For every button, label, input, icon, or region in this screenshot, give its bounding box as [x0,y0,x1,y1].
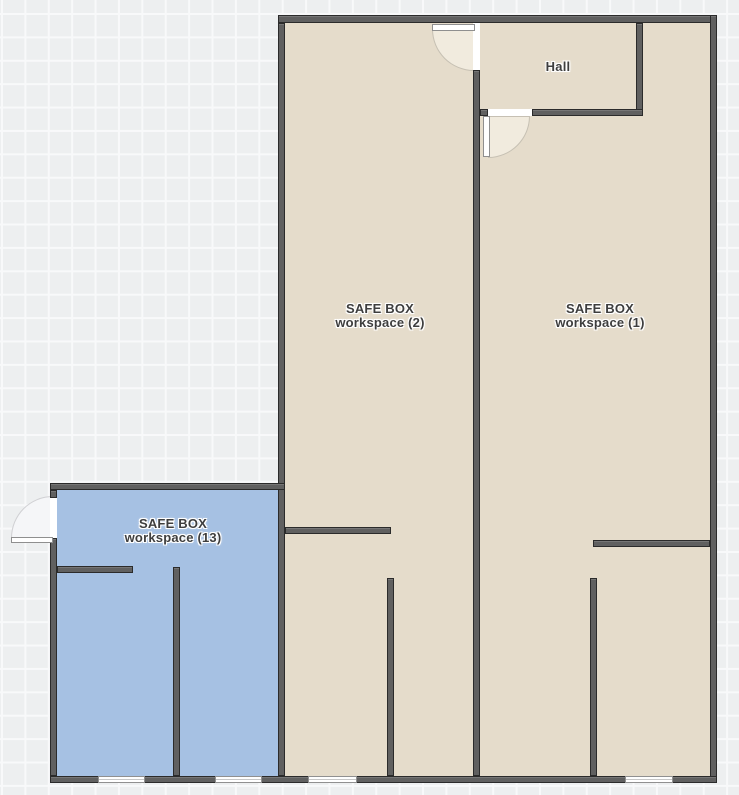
window-ws1[interactable] [625,776,673,783]
wall-main-left[interactable] [278,23,285,776]
wall-hall-right[interactable] [636,23,643,116]
room-workspace-2[interactable] [285,23,473,776]
door-hall-south-opening [488,109,532,116]
door-entry-leaf[interactable] [11,537,53,543]
wall-ws13-partition-horizontal[interactable] [57,566,133,573]
room-hall[interactable] [480,23,636,109]
door-hall-south-leaf[interactable] [483,116,490,157]
door-entry-swing-arc [11,496,53,538]
floorplan-canvas[interactable]: SAFE BOX workspace (2) SAFE BOX workspac… [0,0,739,795]
wall-ws1-partition-horizontal[interactable] [593,540,710,547]
wall-center-vertical[interactable] [473,70,480,776]
door-entry-opening [50,498,57,538]
window-ws13-left[interactable] [98,776,145,783]
wall-outer-top[interactable] [278,15,717,23]
wall-hall-bottom[interactable] [532,109,643,116]
wall-ws2-partition-horizontal[interactable] [285,527,391,534]
wall-outer-bottom[interactable] [50,776,717,783]
room-workspace-1-upper[interactable] [643,23,710,116]
wall-ws1-partition-vertical[interactable] [590,578,597,776]
room-workspace-13-selected[interactable] [57,490,278,776]
wall-annex-left-lower[interactable] [50,538,57,776]
wall-outer-right[interactable] [710,15,717,783]
wall-ws13-partition-vertical[interactable] [173,567,180,776]
window-ws2[interactable] [308,776,357,783]
wall-ws2-partition-vertical[interactable] [387,578,394,776]
wall-annex-top[interactable] [50,483,285,490]
door-hall-west-leaf[interactable] [432,24,475,31]
window-ws13-right[interactable] [215,776,262,783]
wall-annex-left-upper[interactable] [50,490,57,498]
wall-hall-bottom-left-stub[interactable] [480,109,488,116]
